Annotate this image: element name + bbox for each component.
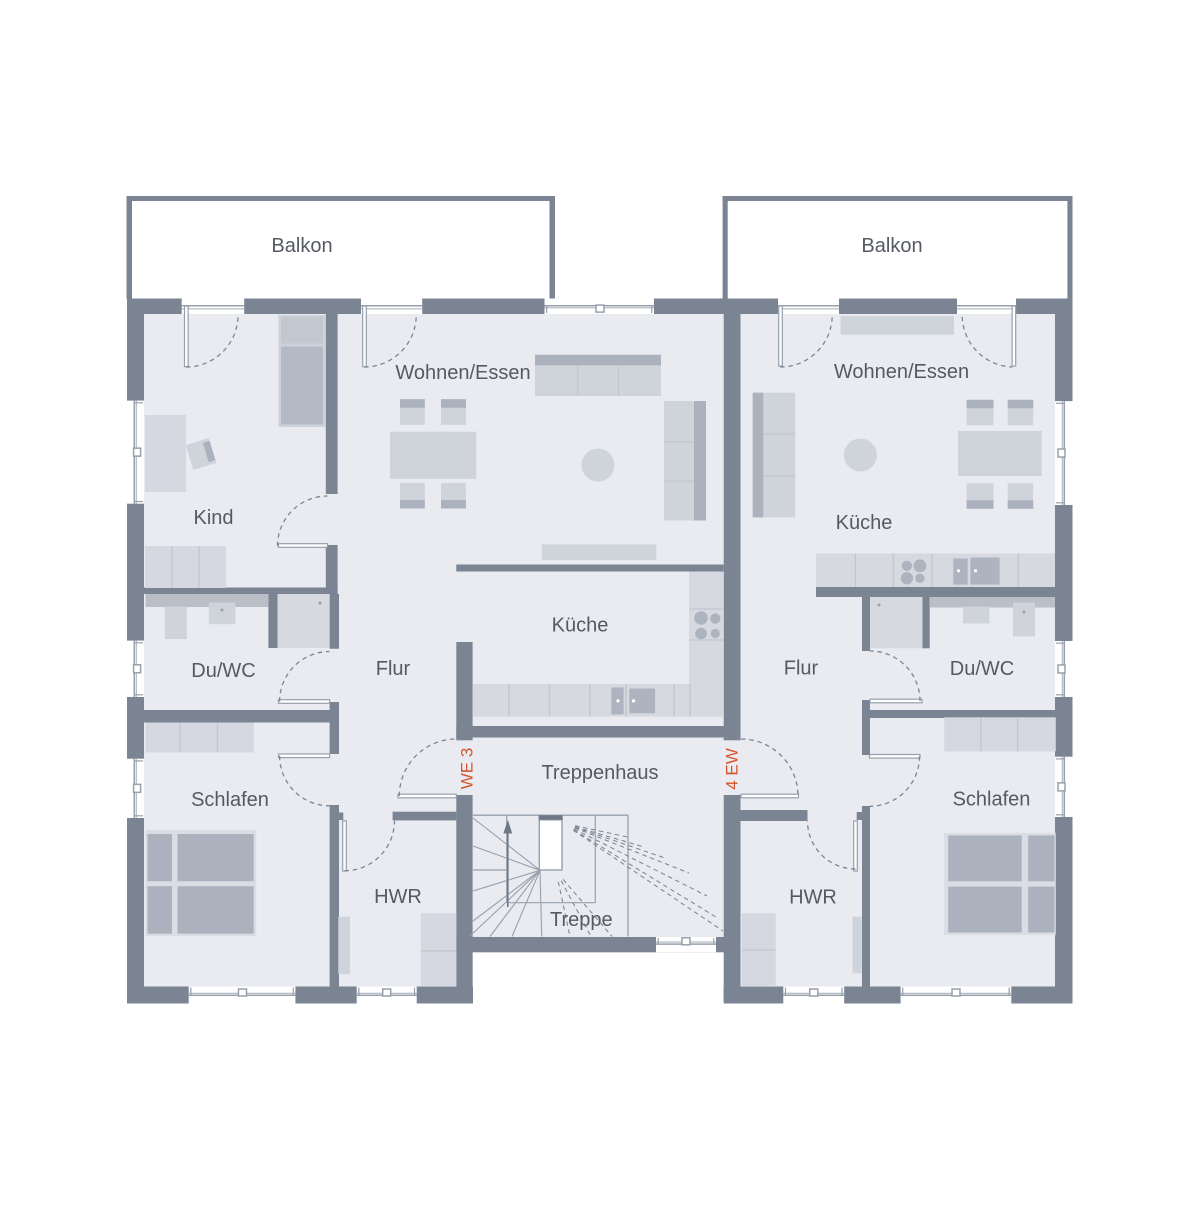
svg-text:Balkon: Balkon (271, 235, 332, 257)
svg-text:Du/WC: Du/WC (950, 658, 1014, 680)
svg-text:Wohnen/Essen: Wohnen/Essen (395, 362, 530, 384)
svg-text:Kind: Kind (193, 507, 233, 529)
svg-text:Treppe: Treppe (550, 909, 613, 931)
svg-text:Du/WC: Du/WC (191, 660, 255, 682)
svg-text:Küche: Küche (552, 615, 609, 637)
svg-text:Balkon: Balkon (861, 235, 922, 257)
svg-text:HWR: HWR (789, 887, 837, 909)
svg-text:HWR: HWR (374, 886, 422, 908)
svg-text:Schlafen: Schlafen (191, 789, 269, 811)
svg-text:Küche: Küche (836, 512, 893, 534)
svg-text:Flur: Flur (784, 658, 819, 680)
svg-text:WE 3: WE 3 (457, 748, 476, 790)
svg-text:4 EW: 4 EW (722, 748, 741, 790)
svg-text:Wohnen/Essen: Wohnen/Essen (834, 361, 969, 383)
svg-text:Flur: Flur (376, 658, 411, 680)
svg-text:Schlafen: Schlafen (953, 789, 1031, 811)
svg-text:Treppenhaus: Treppenhaus (541, 762, 658, 784)
